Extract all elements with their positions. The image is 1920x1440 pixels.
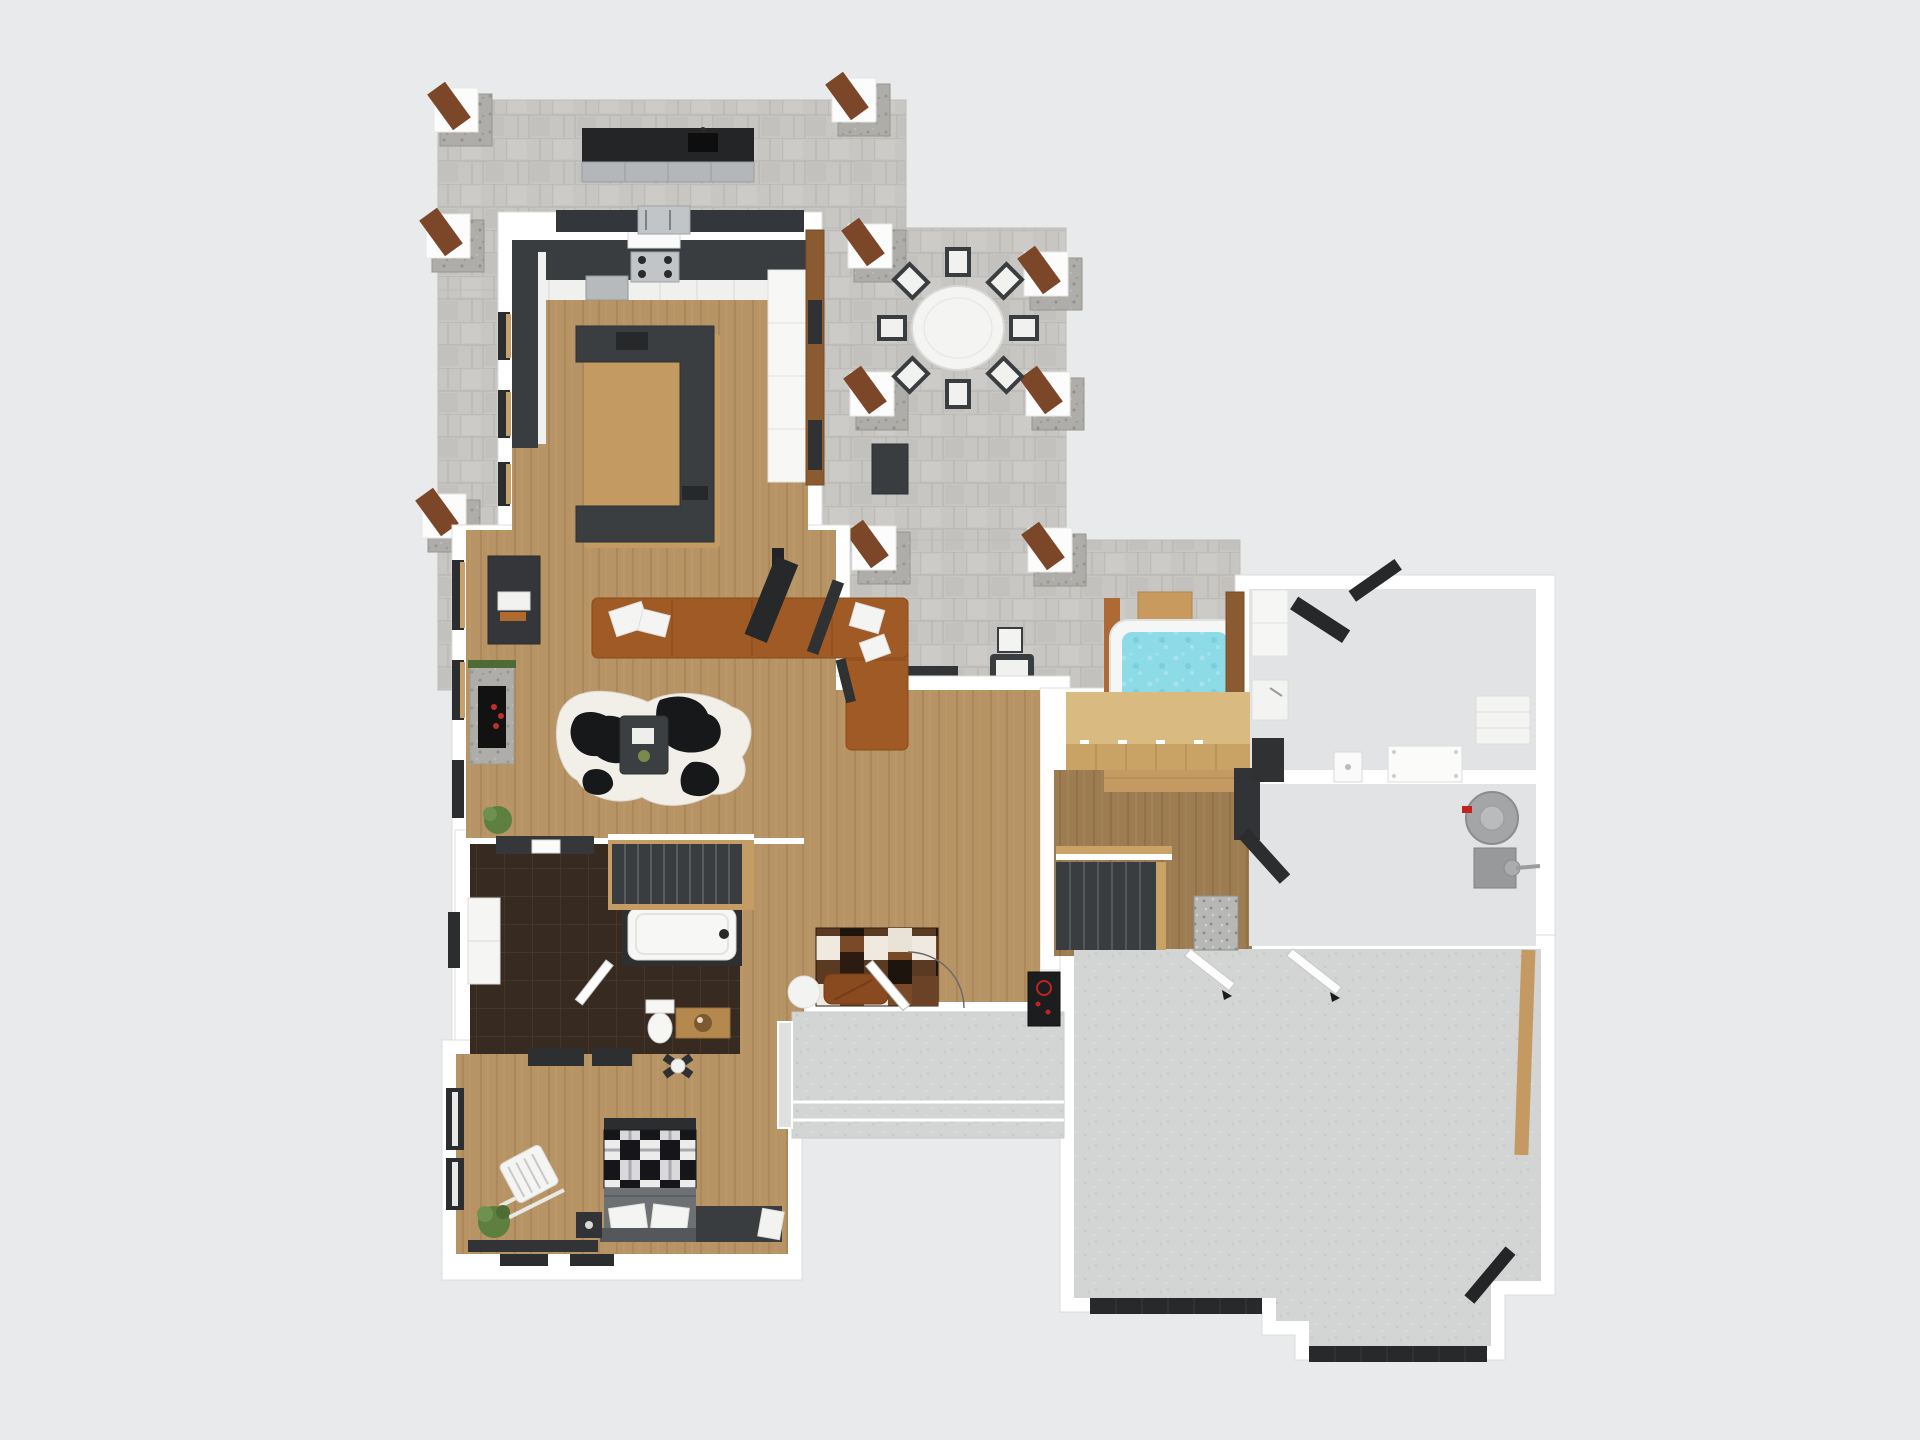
closet-slider-doors: [528, 1048, 584, 1066]
garage-floor: [1074, 949, 1541, 1346]
coffee-table-plant: [638, 750, 650, 762]
cooktop: [631, 252, 679, 282]
burner: [664, 270, 672, 278]
tub-faucet: [719, 929, 729, 939]
floorplan-canvas: [0, 0, 1920, 1440]
table-leg: [1454, 774, 1458, 778]
burner: [664, 256, 672, 264]
burner: [638, 256, 646, 264]
hot-tub-wood-bar: [1138, 592, 1192, 620]
toilet-bowl: [648, 1013, 672, 1043]
bed-footboard: [604, 1118, 696, 1130]
dining-chair-cushion: [1013, 319, 1035, 337]
stove-knob: [1046, 1010, 1051, 1015]
bedroom-window-slit: [452, 1162, 458, 1206]
garage-door-band: [1309, 1346, 1487, 1362]
bedroom-plant-leaf: [496, 1205, 510, 1219]
dining-chair-cushion: [881, 319, 903, 337]
vanity-bowl: [694, 1014, 712, 1032]
furnace-pipe: [1516, 866, 1540, 868]
patch-cell-mid: [912, 976, 938, 1006]
stair-rail-band: [1056, 854, 1172, 860]
closet-slider-doors: [592, 1048, 632, 1066]
dining-chair-cushion: [949, 383, 967, 405]
living-window-sill: [460, 562, 465, 628]
floorplan-stage: [0, 0, 1920, 1440]
bench-pillow: [758, 1208, 785, 1239]
stair-stringer: [1156, 862, 1166, 950]
bottom-wall-ledge: [468, 1240, 598, 1252]
patio-door-slit: [808, 420, 822, 470]
bed-pillow: [651, 1204, 690, 1232]
stair-rail-cap: [1056, 846, 1172, 854]
bottom-window: [500, 1254, 548, 1266]
berry: [498, 713, 504, 719]
berry: [491, 704, 497, 710]
kitchen-window-sill: [506, 464, 511, 504]
laundry-counter: [1252, 680, 1288, 720]
stove-knob: [1036, 1002, 1041, 1007]
bar-faucet: [700, 127, 706, 133]
kitchen-drawer-band: [512, 280, 810, 300]
coffee-table: [620, 716, 668, 774]
laundry-table: [1388, 746, 1462, 782]
wall-shelf-unit: [1476, 696, 1530, 744]
table-leg: [1392, 774, 1396, 778]
sphere-ottoman: [788, 976, 820, 1008]
side-table: [998, 628, 1022, 652]
bar-counter-top: [582, 128, 754, 162]
bedroom-window-slit: [452, 1092, 458, 1146]
living-window-sill: [460, 662, 465, 718]
vanity-bowl-hl: [697, 1017, 703, 1023]
media-decor: [500, 612, 526, 621]
media-tray: [498, 592, 530, 610]
left-counter-run: [512, 248, 538, 448]
table-leg: [1454, 750, 1458, 754]
ceiling-fan-hub: [671, 1059, 685, 1073]
laundry-hamper: [1252, 738, 1284, 782]
porch-side-step: [778, 1022, 792, 1128]
dining-table: [912, 286, 1004, 370]
berry: [493, 723, 499, 729]
left-cabinet-strip: [538, 252, 546, 444]
burner: [638, 270, 646, 278]
bed-plaid-blanket: [604, 1130, 696, 1188]
landing-steps: [1066, 744, 1250, 770]
patio-door-slit: [808, 300, 822, 344]
living-plant-leaf: [483, 807, 497, 821]
water-heater-top: [1480, 806, 1504, 830]
living-window: [452, 760, 464, 818]
patch-cell-light: [888, 928, 912, 952]
table-leg: [1392, 750, 1396, 754]
kitchen-window-sill: [506, 392, 511, 436]
bottom-window: [570, 1254, 614, 1266]
island-sink: [616, 332, 648, 350]
fire-cube: [872, 444, 908, 494]
island-sink-2: [682, 486, 708, 500]
stairwell-white-edge: [608, 834, 754, 840]
toilet-tank: [646, 1000, 674, 1013]
laundry-sink-drain: [1345, 764, 1351, 770]
outdoor-kitchen: [582, 127, 754, 182]
wall-oven: [586, 276, 628, 300]
upper-landing-wood: [1066, 692, 1250, 744]
bed-headboard: [600, 1228, 700, 1242]
bar-sink: [688, 133, 718, 152]
bedroom-plant-leaf: [477, 1206, 493, 1222]
coffee-table-book: [632, 728, 654, 744]
patch-cell-dark: [840, 952, 864, 976]
bath-sink: [532, 840, 560, 853]
granite-pad: [1194, 896, 1238, 950]
dining-chair-cushion: [949, 251, 967, 273]
water-heater-label: [1462, 806, 1472, 813]
bath-window: [448, 912, 460, 968]
nightstand-lamp: [585, 1221, 593, 1229]
kitchen-window-sill: [506, 314, 511, 358]
dining-set: [877, 247, 1039, 409]
garland: [468, 660, 516, 668]
